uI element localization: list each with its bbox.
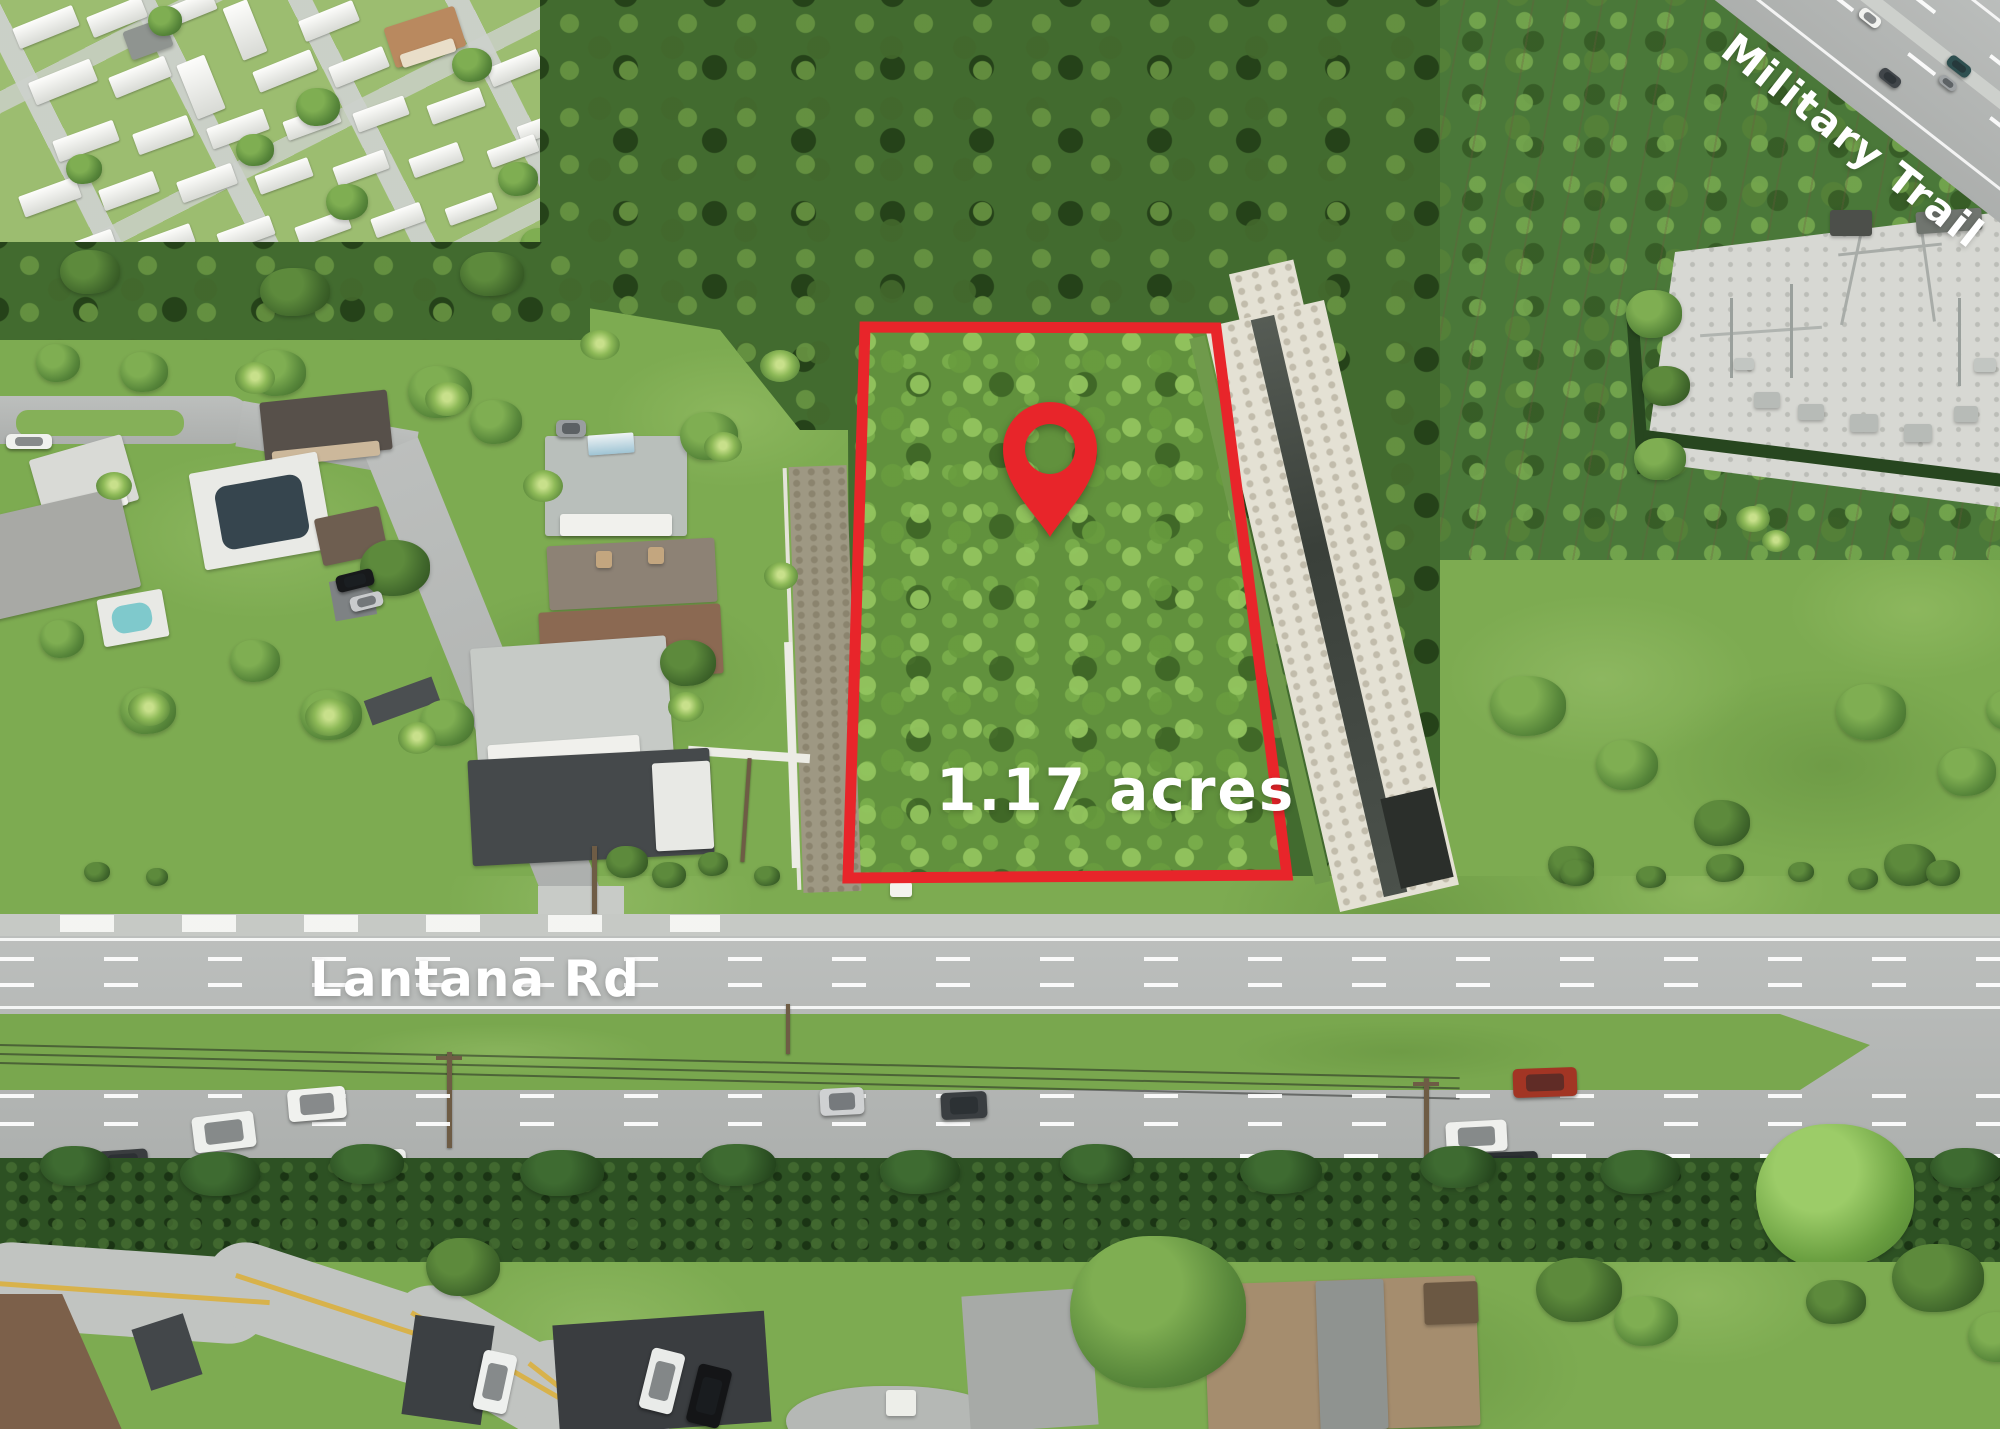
- hedge-top: [1600, 1150, 1680, 1194]
- trailer-home: [252, 49, 318, 93]
- bush: [652, 862, 686, 888]
- hedge-top: [1930, 1148, 2000, 1188]
- bush: [698, 852, 728, 876]
- hedge-top: [1420, 1146, 1496, 1188]
- trailer-home: [28, 59, 98, 106]
- aerial-photo: Lantana Rd 1.17 acres Military Trail: [0, 0, 2000, 1429]
- utility-box: [886, 1390, 916, 1416]
- tree: [498, 162, 538, 196]
- bush: [146, 868, 168, 886]
- tree: [1490, 676, 1566, 736]
- vehicle-car: [556, 420, 586, 437]
- bush: [1560, 860, 1594, 886]
- palm-tree: [580, 330, 620, 360]
- tree: [460, 252, 524, 296]
- edge-line: [0, 1006, 2000, 1009]
- chimney: [596, 551, 612, 568]
- palm-tree: [760, 350, 800, 382]
- palm-tree: [523, 470, 563, 502]
- crossarm: [436, 1056, 462, 1060]
- palm-tree: [128, 692, 170, 726]
- tree: [148, 6, 182, 36]
- tree: [1756, 1124, 1914, 1268]
- tree: [1892, 1244, 1984, 1312]
- vehicle-car: [6, 434, 52, 449]
- hedge-top: [880, 1150, 960, 1194]
- vehicle-suv: [940, 1091, 987, 1120]
- tree: [470, 400, 522, 444]
- hedge-top: [1240, 1150, 1322, 1194]
- tree: [1614, 1296, 1678, 1346]
- tree: [360, 540, 430, 596]
- hedge-top: [330, 1144, 404, 1184]
- bush: [1636, 866, 1666, 888]
- tree: [236, 134, 274, 166]
- equipment: [1974, 358, 1996, 372]
- hedge-top: [700, 1144, 776, 1186]
- vehicle-suv: [287, 1086, 348, 1123]
- trailer-home: [12, 5, 80, 49]
- tree: [1634, 438, 1686, 480]
- tree: [1596, 740, 1658, 790]
- vehicle-van: [191, 1110, 257, 1153]
- lane-marking: [0, 1122, 2000, 1126]
- trailer-home: [298, 0, 360, 42]
- bush: [606, 846, 648, 878]
- roof-section: [1315, 1279, 1388, 1429]
- tree: [1836, 684, 1906, 740]
- substation-mast: [1958, 298, 1961, 386]
- palm-tree: [398, 722, 436, 754]
- tree: [60, 250, 120, 294]
- vehicle-rv: [587, 432, 634, 455]
- chimney: [648, 547, 664, 564]
- tree: [36, 344, 80, 382]
- tree: [1694, 800, 1750, 846]
- hedge-top: [1060, 1144, 1134, 1184]
- transformer: [1954, 406, 1978, 422]
- trailer-home: [222, 0, 267, 61]
- palm-tree: [96, 472, 132, 500]
- substation-mast: [1790, 284, 1793, 378]
- hedge-top: [40, 1146, 110, 1186]
- tree: [260, 268, 330, 316]
- house-roof: [546, 538, 717, 611]
- palm-tree: [1736, 506, 1770, 532]
- porch: [1423, 1281, 1478, 1325]
- trailer-home: [370, 202, 426, 239]
- bush: [84, 862, 110, 882]
- trailer-home: [18, 176, 82, 217]
- awning: [652, 761, 715, 852]
- house-wall: [560, 514, 672, 536]
- tree: [296, 88, 340, 126]
- lane-marking: [0, 983, 2000, 987]
- acreage-label: 1.17 acres: [936, 756, 1295, 824]
- trailer-home: [408, 142, 464, 179]
- utility-pole: [447, 1052, 452, 1148]
- palm-tree: [425, 382, 469, 416]
- trailer-home: [486, 49, 544, 88]
- equipment: [1734, 358, 1754, 370]
- palm-tree: [235, 362, 275, 394]
- lane-marking: [0, 957, 2000, 961]
- trailer-home: [328, 46, 390, 88]
- bush: [1706, 854, 1744, 882]
- street-island: [16, 410, 184, 436]
- utility-pole: [786, 1004, 790, 1054]
- tree: [1938, 748, 1996, 796]
- transformer: [1904, 424, 1932, 442]
- bush: [1926, 860, 1960, 886]
- tree: [1070, 1236, 1246, 1388]
- crossarm: [1413, 1082, 1439, 1086]
- hedge-row: [0, 1158, 2000, 1272]
- hedge-top: [180, 1152, 260, 1196]
- substation-mast: [1730, 298, 1733, 378]
- tree: [1536, 1258, 1622, 1322]
- trailer-home: [444, 192, 497, 226]
- palm-tree: [704, 432, 742, 462]
- tree: [230, 640, 280, 682]
- bush: [754, 866, 780, 886]
- tree: [326, 184, 368, 220]
- equipment: [1830, 210, 1872, 236]
- tree: [452, 48, 492, 82]
- tree: [120, 352, 168, 392]
- transformer: [1798, 404, 1824, 420]
- edge-line: [0, 938, 2000, 941]
- palm-tree: [305, 698, 353, 736]
- trailer-home: [108, 56, 172, 99]
- vehicle-car: [1513, 1067, 1578, 1098]
- tree: [660, 640, 716, 686]
- bush: [1788, 862, 1814, 882]
- tree: [426, 1238, 500, 1296]
- palm-tree: [764, 562, 798, 590]
- tree: [66, 154, 102, 184]
- palm-tree: [668, 692, 704, 722]
- lantana-rd-label: Lantana Rd: [310, 950, 640, 1008]
- tree: [1626, 290, 1682, 338]
- trailer-home: [98, 171, 160, 212]
- trailer-home: [352, 95, 410, 132]
- transformer: [1754, 392, 1780, 408]
- palm-tree: [1762, 530, 1790, 552]
- trailer-home: [426, 87, 485, 125]
- trailer-home: [332, 149, 390, 186]
- hedge-top: [520, 1150, 604, 1196]
- curb-marking: [60, 915, 720, 932]
- transformer: [1850, 414, 1878, 432]
- tree: [1806, 1280, 1866, 1324]
- trailer-home: [176, 163, 238, 204]
- road-sign: [890, 882, 912, 897]
- bush: [1848, 868, 1878, 890]
- trailer-home: [132, 115, 194, 156]
- vehicle-suv: [819, 1087, 864, 1116]
- tree: [40, 620, 84, 658]
- trailer-home: [176, 54, 226, 119]
- tree: [1642, 366, 1690, 406]
